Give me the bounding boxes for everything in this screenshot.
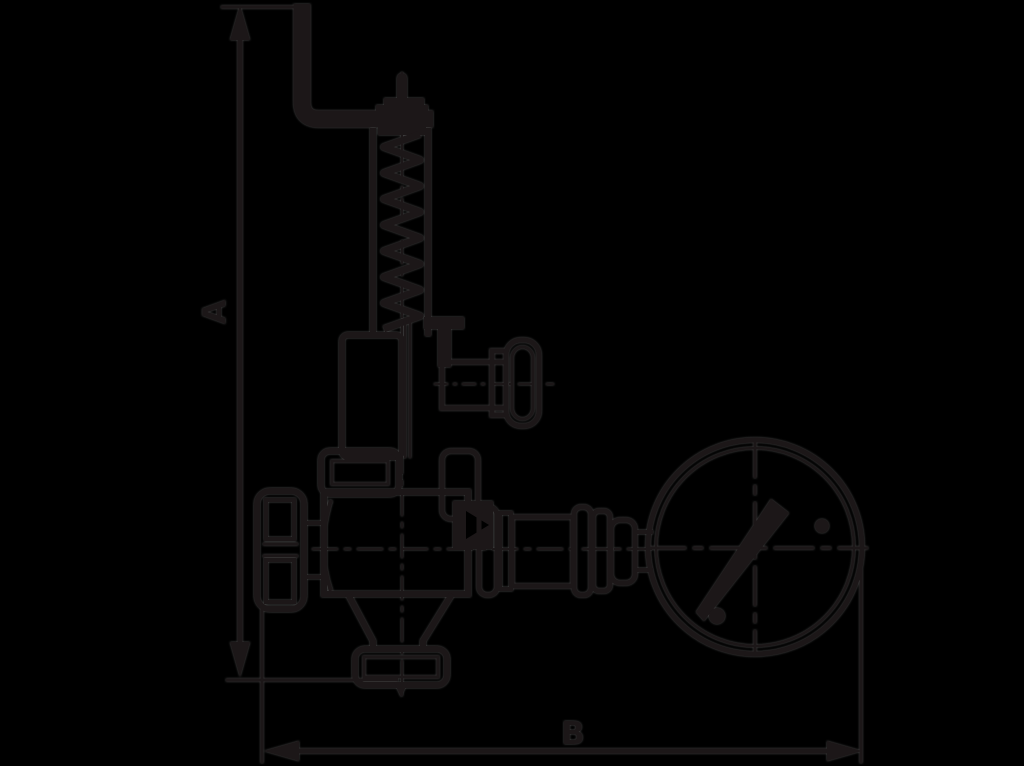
- union-nut-ring-2: [593, 511, 610, 591]
- outlet-gasket-ring: [500, 513, 511, 589]
- handwheel-spoke-bottom: [266, 560, 294, 602]
- spring-coil: [384, 134, 420, 329]
- reducer-nut: [611, 520, 635, 583]
- gland-nut-face: [332, 461, 388, 484]
- dimension-a-arrow-bottom-icon: [230, 642, 250, 677]
- gauge-screw-dot-right: [815, 519, 829, 533]
- flow-arrow-icon: [394, 682, 408, 697]
- body-skirt: [348, 594, 452, 652]
- dimension-b-arrow-left-icon: [264, 741, 299, 761]
- valve-dimension-drawing: A B: [0, 0, 1024, 766]
- dimension-b: B: [262, 548, 862, 763]
- gauge-screw-dot-left: [709, 608, 725, 624]
- union-nut-ring-1: [574, 507, 591, 595]
- valve-body: [324, 492, 468, 594]
- dimension-b-arrow-right-icon: [827, 741, 862, 761]
- dimension-b-label: B: [561, 716, 585, 752]
- spring-bonnet: [342, 335, 402, 457]
- ink-layer: A B: [197, 4, 868, 763]
- spindle-cap-upper: [384, 98, 424, 105]
- pressure-gauge: [646, 438, 868, 656]
- dimension-a-label: A: [197, 300, 233, 324]
- drawing-canvas: A B: [0, 0, 1024, 766]
- spindle-cap-lower: [376, 105, 428, 112]
- dimension-a-arrow-top-icon: [230, 5, 250, 40]
- pipe-nipple: [512, 517, 573, 586]
- handwheel-spoke-top: [266, 500, 294, 539]
- gauge-needle: [696, 499, 789, 621]
